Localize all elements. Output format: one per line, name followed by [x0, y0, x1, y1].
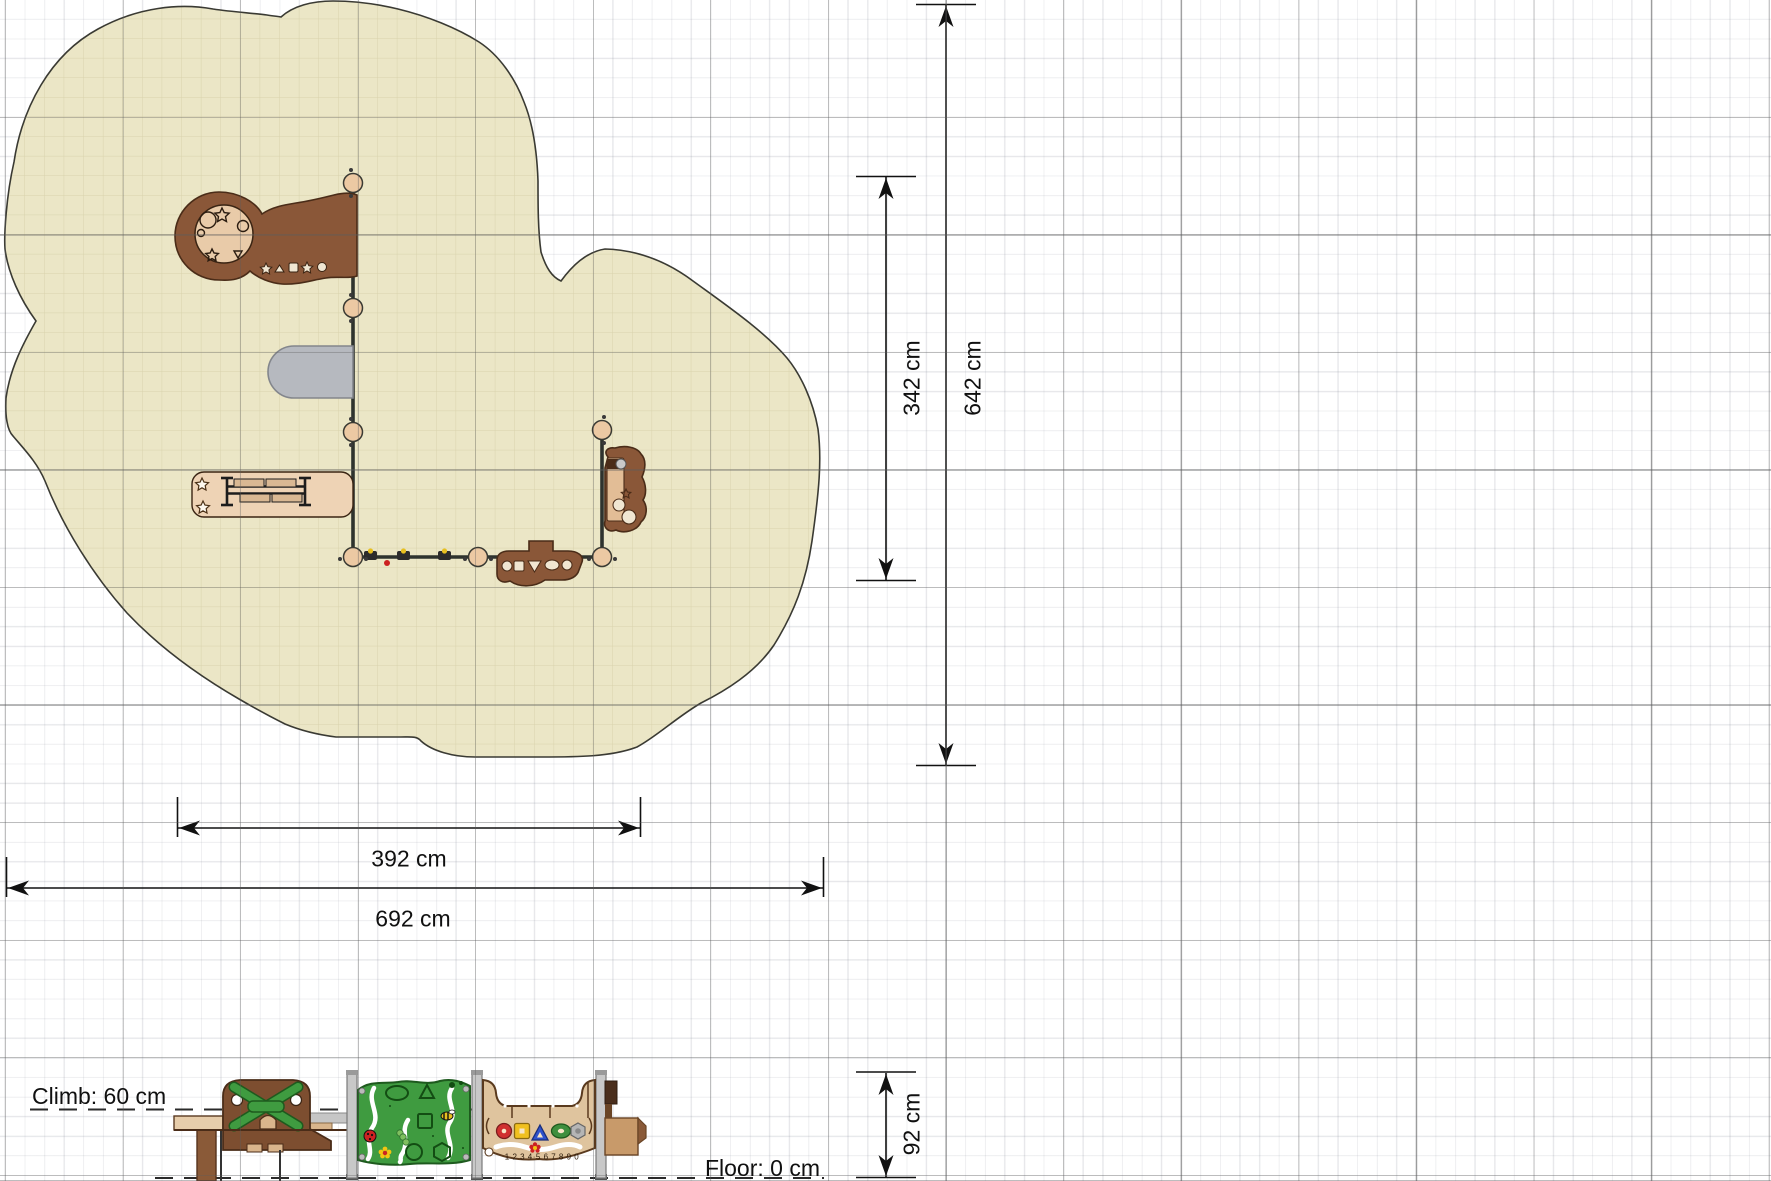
small-tower-plan[interactable]: [605, 447, 647, 532]
elevation-side-tower[interactable]: [605, 1081, 646, 1155]
dimension-label-92: 92 cm: [899, 1093, 926, 1156]
dimension-label-642: 642 cm: [960, 340, 987, 415]
elevation-climbing-panel[interactable]: [358, 1080, 470, 1165]
climb-height-label: Climb: 60 cm: [32, 1083, 166, 1110]
elevation-table-tower[interactable]: [174, 1080, 352, 1181]
counting-panel-numbers: 1 2 3 4·5 6 7 8 9 0: [505, 1153, 579, 1162]
design-canvas[interactable]: 342 cm 642 cm 392 cm 692 cm 92 cm Climb:…: [0, 0, 1771, 1181]
bench-table-plan[interactable]: [192, 472, 353, 517]
plan-and-elevation-drawing: [0, 0, 1771, 1181]
dimension-label-392: 392 cm: [371, 846, 446, 873]
safety-surfacing-area[interactable]: [5, 1, 820, 757]
dimension-392: [178, 797, 641, 837]
dimension-label-692: 692 cm: [375, 906, 450, 933]
dimension-label-342: 342 cm: [899, 340, 926, 415]
slide-plan[interactable]: [268, 346, 353, 398]
elevation-activity-panel[interactable]: [483, 1080, 595, 1160]
elevation-view[interactable]: [174, 1070, 646, 1181]
floor-level-label: Floor: 0 cm: [680, 1155, 820, 1181]
